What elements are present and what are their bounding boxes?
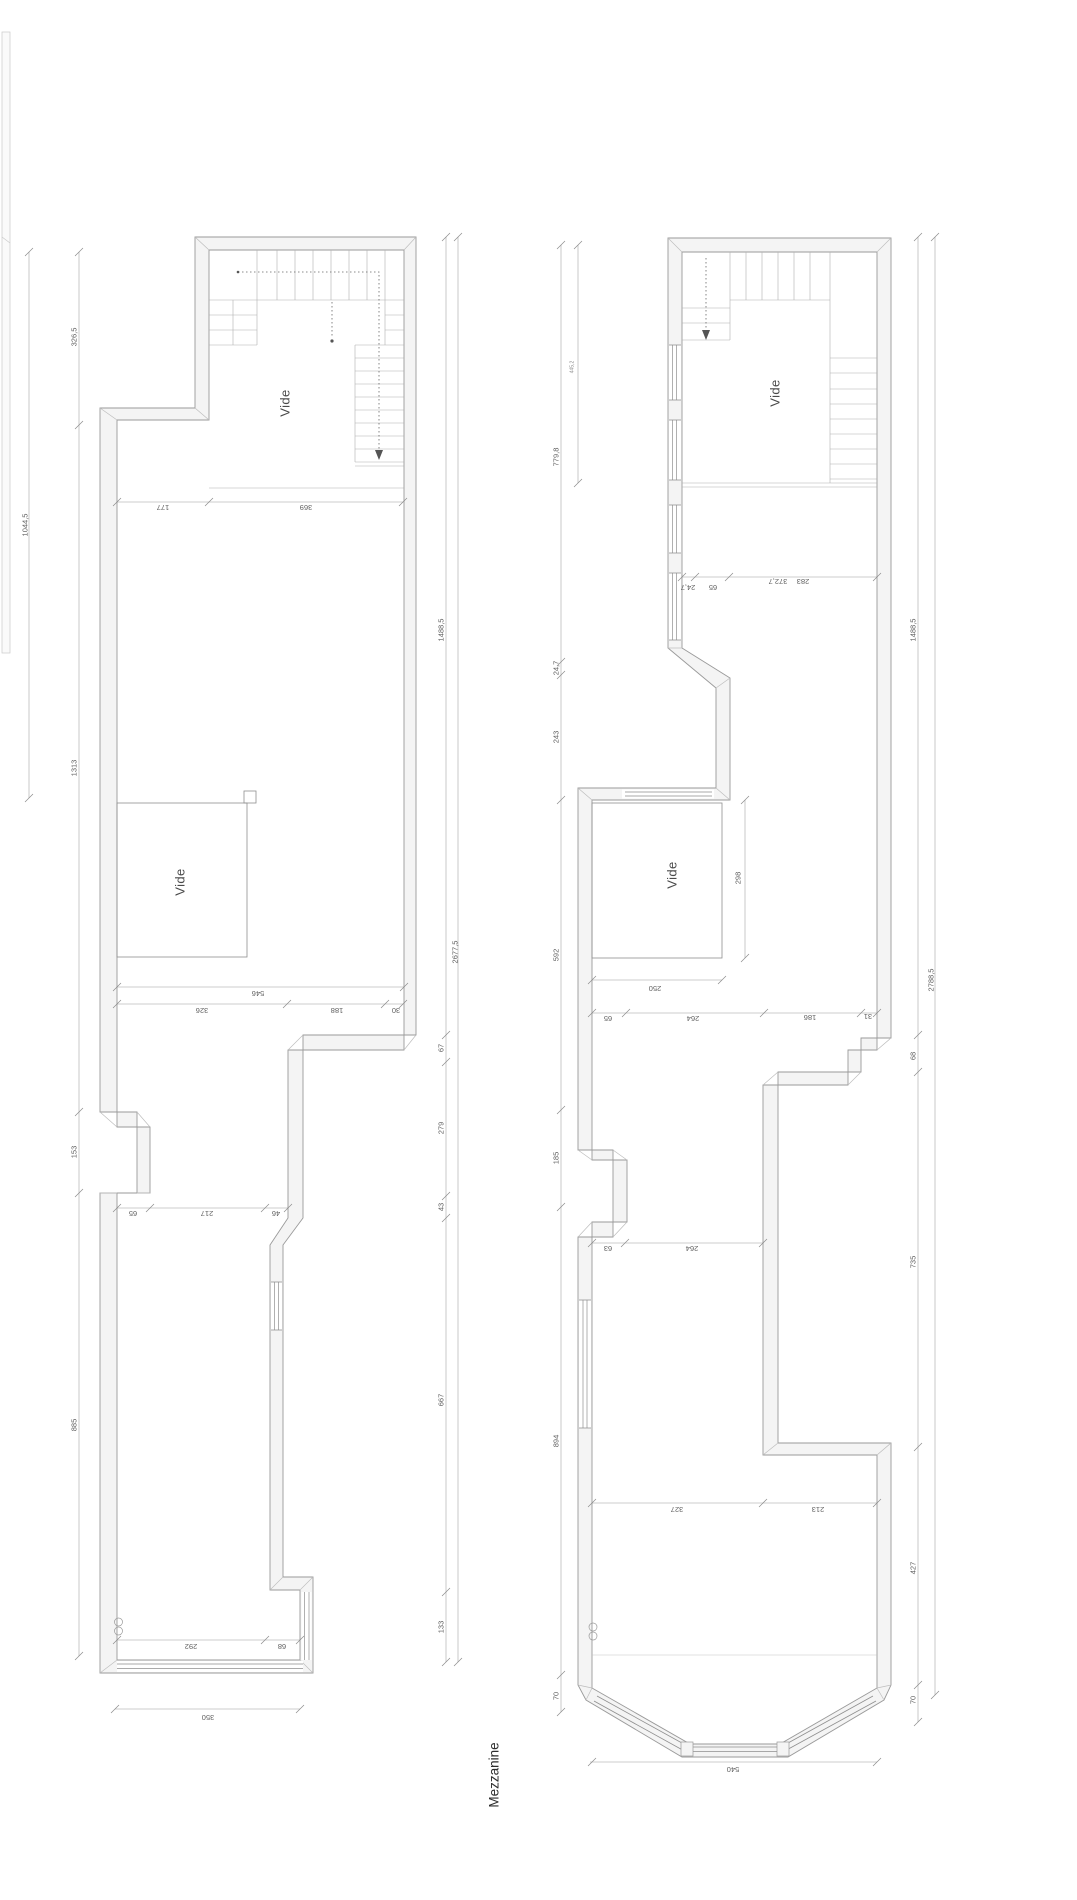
- dimension-lines: [25, 233, 939, 1766]
- right-plan-void-opening: [592, 803, 722, 958]
- floorplan-sheet: 326,51044,513131538851488,52677,56727943…: [0, 0, 1077, 1900]
- left-plan-stairs: [209, 250, 404, 488]
- plan-title: Mezzanine: [487, 1742, 501, 1807]
- right-plan-windows: [579, 345, 877, 1756]
- left-plan-void-opening: [117, 791, 256, 957]
- right-plan-walls: [578, 238, 891, 1757]
- right-plan-stairs: [682, 252, 877, 487]
- left-plan-stair-path: [237, 271, 383, 460]
- edge-wall-strip: [2, 32, 10, 653]
- right-plan-stair-path: [702, 258, 710, 340]
- left-plan-walls: [100, 237, 416, 1673]
- floorplan-drawing: [0, 0, 1077, 1900]
